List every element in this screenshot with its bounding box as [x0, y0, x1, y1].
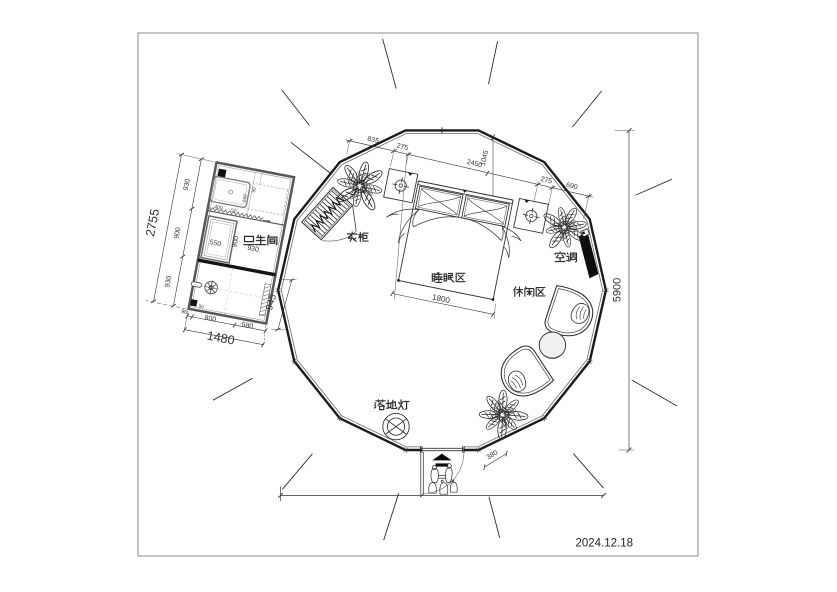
svg-text:2024.12.18: 2024.12.18: [576, 538, 634, 550]
svg-text:90: 90: [181, 309, 188, 316]
svg-text:5900: 5900: [612, 278, 624, 302]
